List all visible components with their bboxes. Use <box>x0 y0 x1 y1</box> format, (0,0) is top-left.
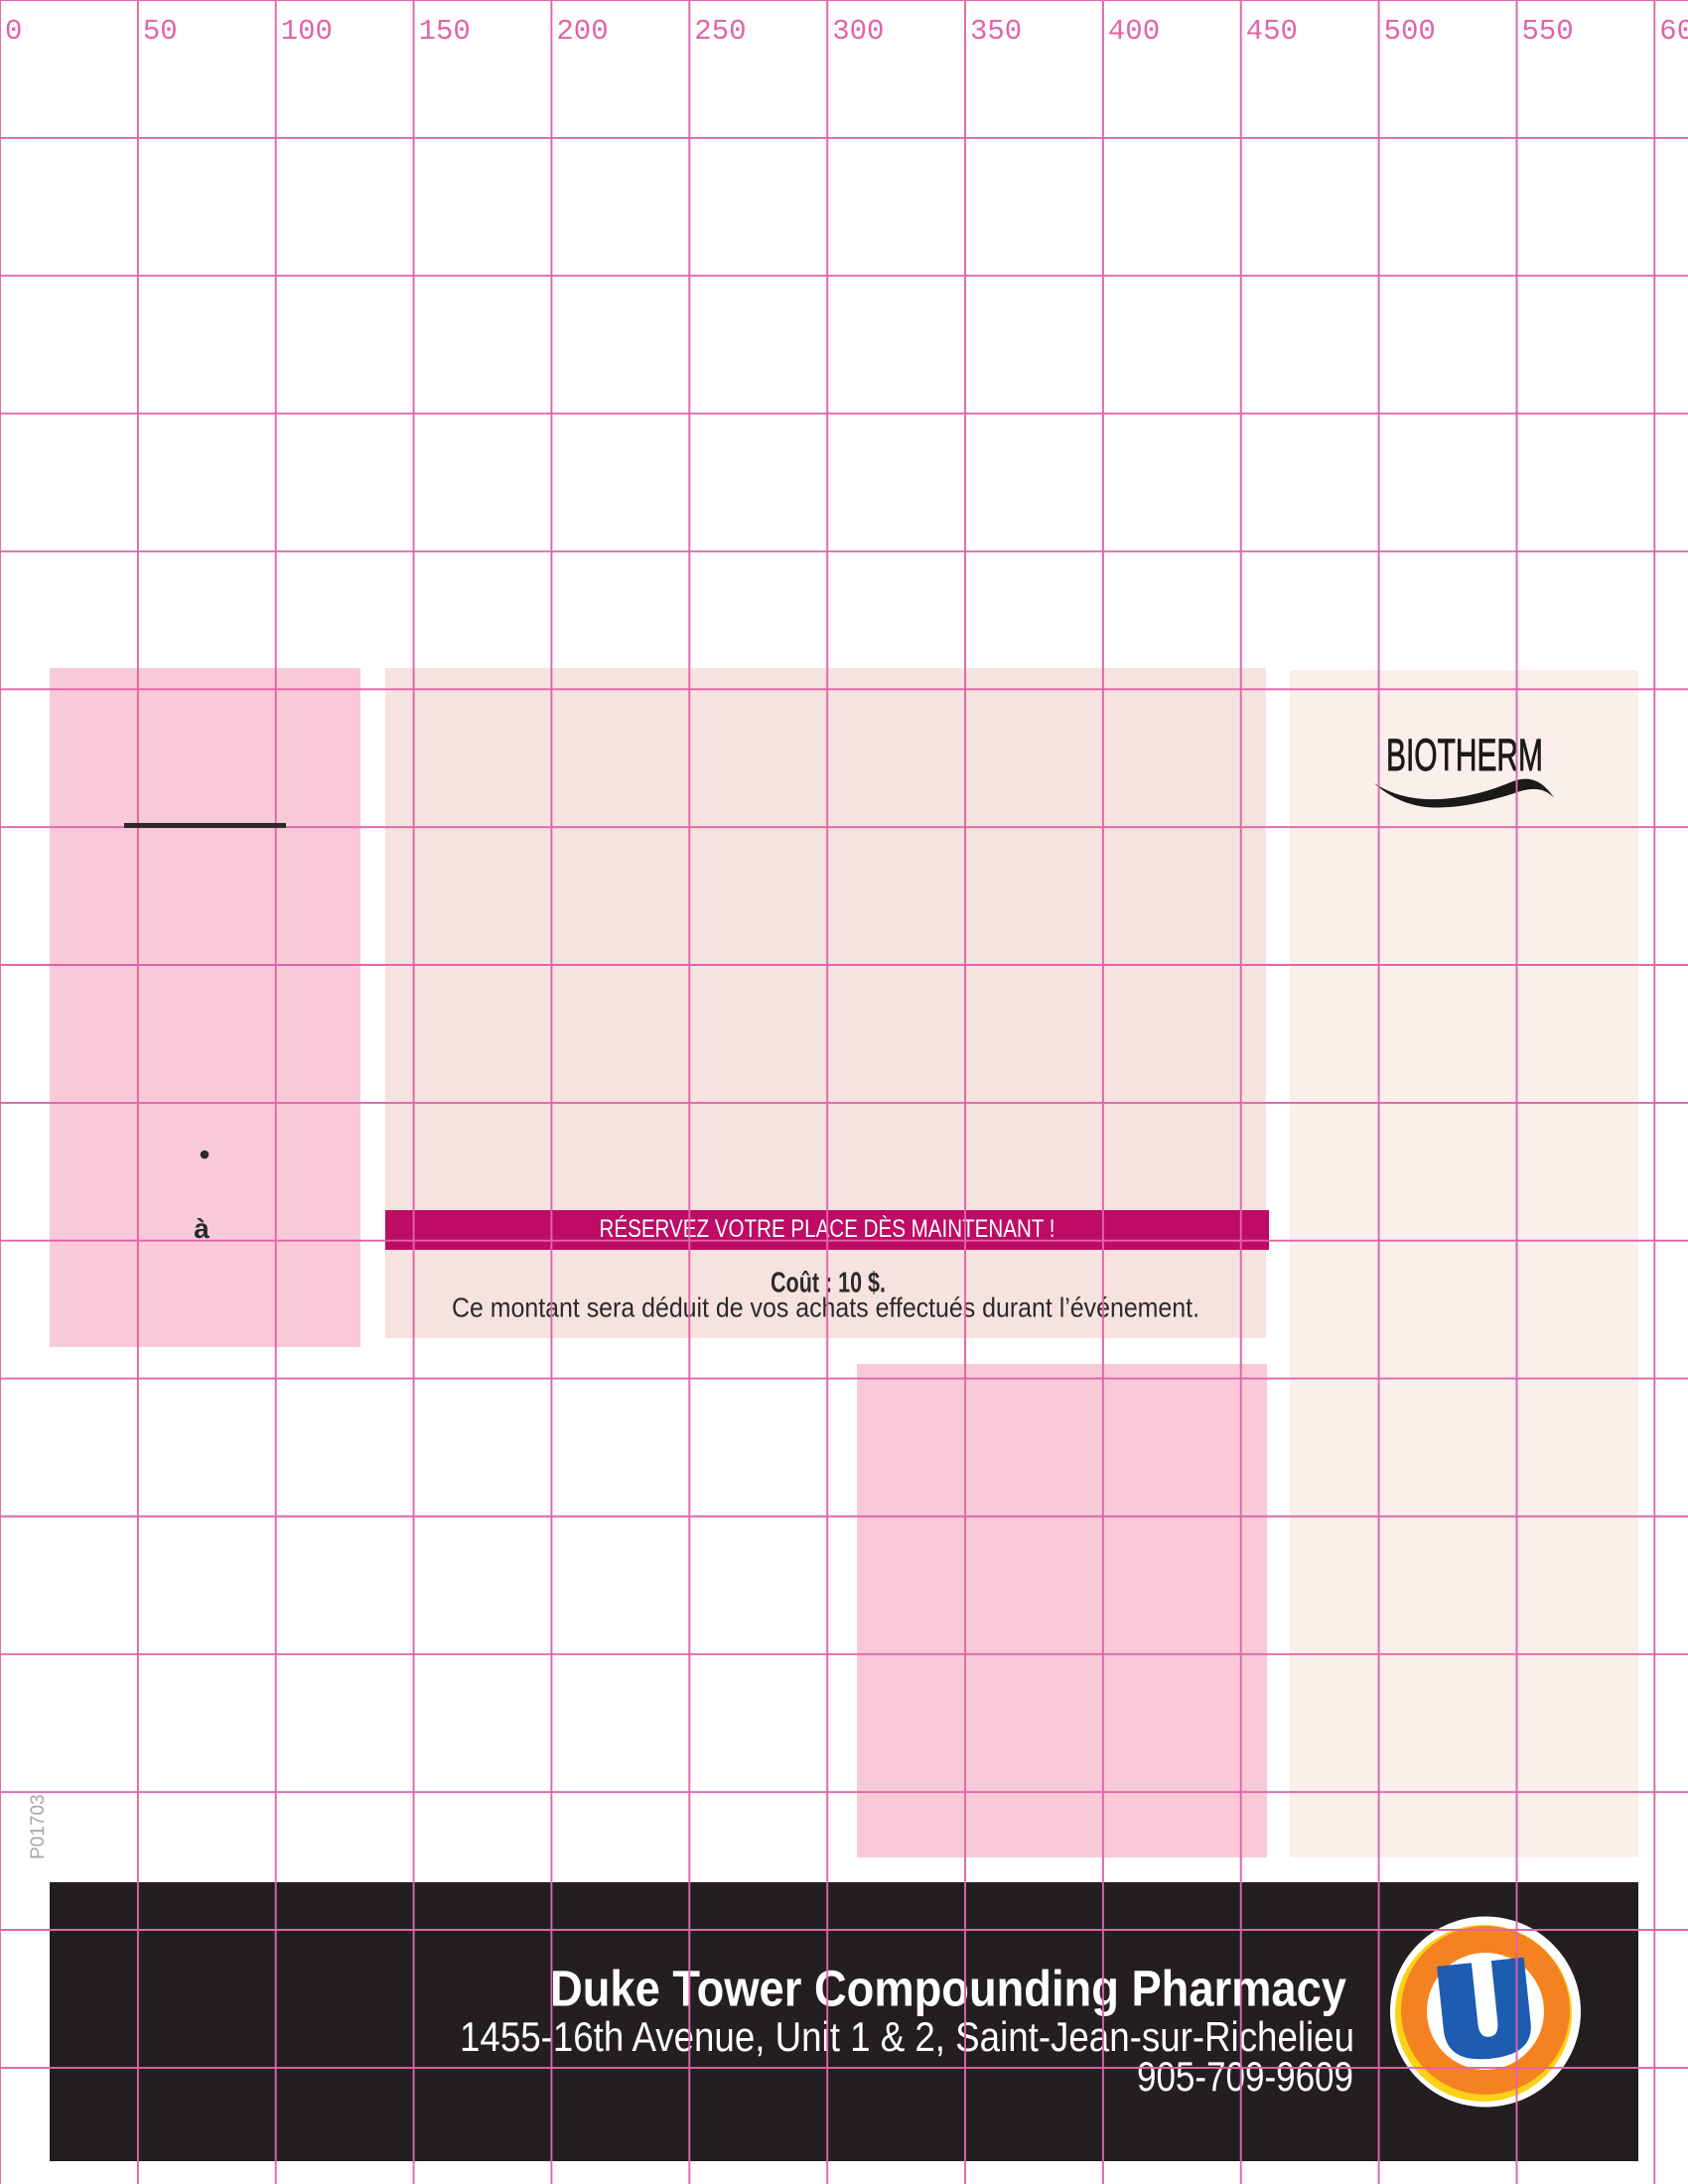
svg-text:600: 600 <box>1659 15 1688 48</box>
svg-text:Ce montant sera déduit de vos: Ce montant sera déduit de vos achats eff… <box>452 1293 1199 1323</box>
svg-text:Duke Tower Compounding Pharmac: Duke Tower Compounding Pharmacy <box>550 1961 1347 2017</box>
svg-text:905-709-9609: 905-709-9609 <box>1137 2053 1353 2100</box>
svg-text:400: 400 <box>1108 15 1160 48</box>
svg-text:550: 550 <box>1522 15 1574 48</box>
svg-text:à: à <box>194 1213 210 1244</box>
svg-text:300: 300 <box>832 15 884 48</box>
svg-text:500: 500 <box>1384 15 1436 48</box>
svg-text:450: 450 <box>1246 15 1298 48</box>
svg-text:150: 150 <box>419 15 471 48</box>
svg-text:350: 350 <box>970 15 1022 48</box>
svg-text:0: 0 <box>5 15 22 48</box>
svg-text:P01703: P01703 <box>28 1794 49 1859</box>
svg-text:200: 200 <box>556 15 608 48</box>
svg-text:250: 250 <box>694 15 746 48</box>
svg-text:100: 100 <box>281 15 333 48</box>
svg-text:50: 50 <box>143 15 178 48</box>
svg-text:BIOTHERM: BIOTHERM <box>1386 730 1543 780</box>
